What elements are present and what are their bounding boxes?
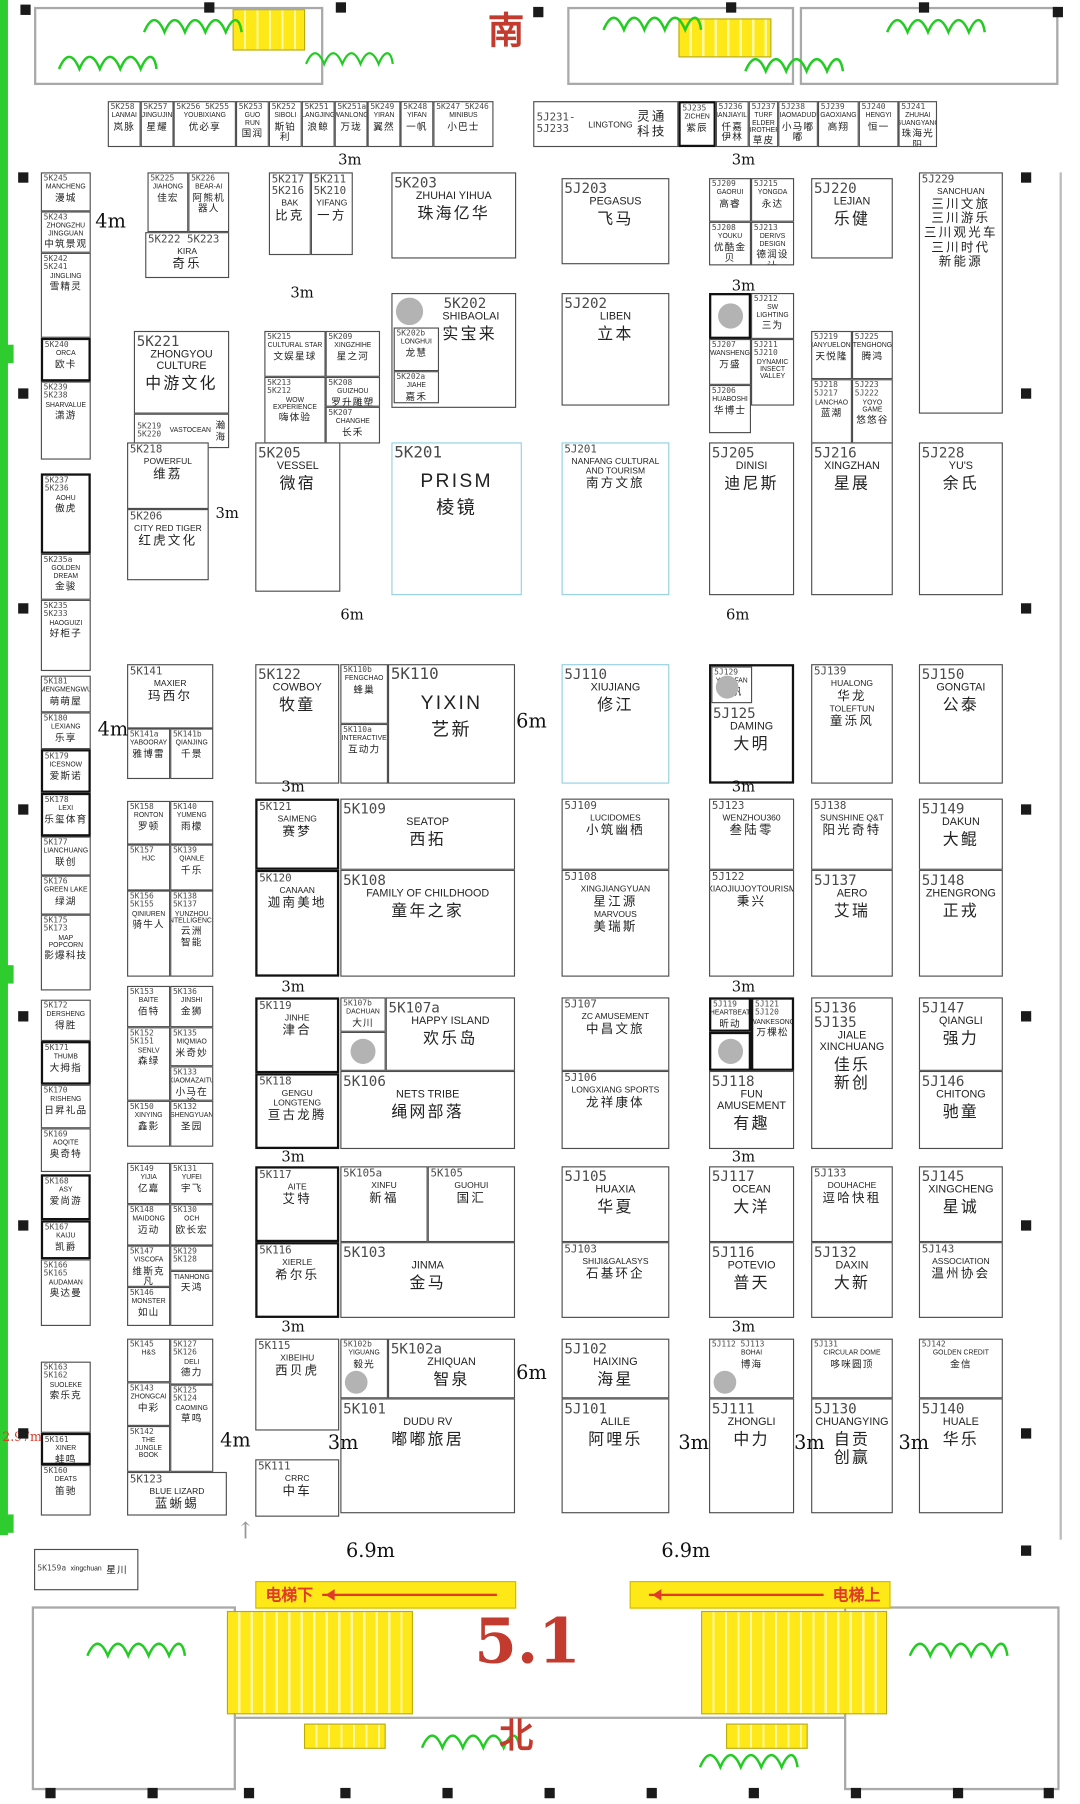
booth-5K139: 5K139QIANLE千乐: [170, 845, 213, 891]
booth-name-zh: 阿熊机器人: [191, 193, 227, 215]
booth-circle-marker: [396, 298, 423, 326]
booth-code: 5J136 5J135: [813, 1000, 891, 1030]
dimension-label: 3m: [732, 1149, 755, 1166]
booth-name-en: YOYO GAME: [854, 400, 890, 414]
booth-code: 5K132: [172, 1103, 212, 1111]
booth-5K127: 5K127 5K126DELI德力: [170, 1339, 213, 1385]
booth-name-en: TURF ELDER BROTHER: [749, 113, 778, 135]
booth-5J212: 5J212SW LIGHTING三为: [751, 293, 794, 339]
booth-name-en: GOLDEN CREDIT: [933, 1351, 989, 1358]
booth-name-en: PRISM: [420, 471, 492, 492]
booth-name-en: XIUJIANG: [591, 683, 641, 694]
booth-name-zh: 迈动: [138, 1224, 160, 1235]
booth-code: 5K177: [43, 839, 90, 847]
column-marker: [18, 1011, 28, 1021]
booth-name-en: COWBOY: [273, 683, 322, 694]
booth-code: 5K207: [327, 409, 378, 417]
booth-5K130: 5K130OCH欧长宏: [170, 1204, 213, 1245]
booth-code: 5J110: [563, 666, 667, 681]
booth-name-en: YUMENG: [177, 813, 207, 820]
booth-5K145: 5K145H&S: [127, 1339, 170, 1383]
booth-name-en: JINMA: [412, 1261, 444, 1272]
dimension-label: 4m: [98, 718, 129, 741]
booth-name-en: LIBEN: [600, 312, 631, 323]
booth-circle-marker: [718, 303, 743, 328]
booth-name-en: QIANJIAYILIN: [716, 113, 749, 120]
booth-code: 5K127 5K126: [172, 1341, 212, 1358]
booth-name-en: BAK: [281, 199, 298, 208]
booth-code: 5J121 5J120: [754, 1001, 791, 1018]
dimension-label: 3m: [678, 1432, 709, 1455]
booth-name-zh: 美瑞斯: [593, 921, 637, 936]
booth-name-en: CHUANGYING: [815, 1417, 888, 1428]
booth-name-zh: 鑫影: [138, 1121, 160, 1132]
booth-code: 5K219 5K220: [136, 422, 165, 439]
booth-name-zh: 玛西尔: [148, 689, 192, 704]
booth-5K206: 5K206CITY RED TIGER红虎文化: [127, 509, 209, 580]
dimension-label: 6m: [516, 710, 547, 733]
booth-code: 5K105: [429, 1169, 513, 1180]
booth-code: 5J117: [711, 1169, 793, 1184]
booth-name-zh: 小马在途: [172, 1087, 211, 1101]
column-marker: [340, 1788, 350, 1798]
booth-code: 5K247 5K246: [435, 103, 492, 111]
booth-name-en: JINHE: [285, 1013, 310, 1022]
booth-code: 5K171: [44, 1044, 88, 1052]
booth-name-en: HAOGUIZI: [49, 620, 82, 627]
booth-code: 5K141a: [129, 731, 169, 739]
column-marker: [147, 1788, 157, 1798]
booth-name-en: YUNZHOU INTELLIGENCE: [170, 911, 213, 925]
booth-name-zh: 迪尼斯: [724, 474, 778, 492]
column-marker: [18, 388, 28, 398]
booth-name-en: THE JUNGLE BOOK: [129, 1438, 168, 1460]
booth-name-zh: 千乐: [181, 865, 203, 876]
booth-name-en: NANFANG CULTURAL AND TO­URISM: [564, 457, 667, 475]
booth-name-en: YIJIA: [140, 1175, 156, 1182]
plant-decoration: [590, 11, 715, 41]
booth-5J105: 5J105HUAXIA华夏: [562, 1166, 670, 1242]
booth-5K258: 5K258LANMAI岚脉: [108, 101, 141, 147]
booth-code: 5K101: [342, 1401, 513, 1416]
booth-name-zh: 中游文化: [145, 374, 218, 392]
booth-code: 5K150: [129, 1103, 169, 1111]
booth-name-zh: 蓝蜥蜴: [155, 1497, 199, 1512]
booth-5K146: 5K146MONSTER如山: [127, 1287, 170, 1326]
booth-5K179: 5K179ICESNOW爱斯诺: [41, 749, 91, 793]
booth-5K141a: 5K141aYABOORAY雅博雷: [127, 728, 170, 779]
booth-name-en: BAITE: [139, 998, 159, 1005]
booth-code: 5J118: [711, 1073, 793, 1088]
booth-name-en: INTERACTIVE: [342, 736, 387, 743]
booth-name-zh: 笛驰: [55, 1485, 77, 1496]
booth-5K103: 5K103JINMA金马: [340, 1242, 515, 1318]
booth-name-en: SHIJI&GALASYS: [582, 1257, 648, 1266]
booth-name-en: CHANGHE: [336, 419, 370, 426]
booth-5J211: 5J211 5J210DYNAMIC INSECT VALLEY: [751, 339, 794, 406]
booth-name-zh: 腾鸿: [862, 351, 884, 362]
booth-5J207: 5J207WANSHENG万盛: [709, 339, 751, 385]
dimension-label: 3m: [794, 1432, 825, 1455]
booth-code: 5J139: [813, 666, 891, 677]
booth-code: 5K237 5K236: [44, 477, 88, 494]
booth-5K217: 5K217 5K216BAK比克: [269, 172, 311, 255]
booth-code: 5K149: [129, 1165, 169, 1173]
booth-5J140: 5J140HUALE华乐: [919, 1398, 1003, 1513]
booth-name-zh: 绿湖: [55, 896, 77, 907]
booth-circle-marker: [716, 676, 739, 699]
booth-code: 5K215: [266, 333, 324, 341]
booth-name-zh: 佳宏: [157, 193, 179, 204]
booth-name-zh: 星川: [106, 1565, 128, 1576]
booth-code: 5J123: [711, 801, 793, 812]
booth-5J208: 5J208YOUKU优酷金贝: [709, 222, 751, 266]
dimension-label: 3m: [281, 1319, 304, 1336]
booth-code: 5K141: [129, 666, 212, 677]
booth-name-en: HAPPY ISLAND: [411, 1016, 489, 1027]
booth-code: 5K102b: [342, 1341, 386, 1349]
booth-code: 5J241: [900, 103, 935, 111]
booth-name-en: ASY: [59, 1187, 73, 1194]
booth-code: 5J142: [921, 1341, 1002, 1349]
booth-area: TIANHONG天鸿: [170, 1271, 213, 1326]
booth-5J101: 5J101ALILE阿哩乐: [562, 1398, 670, 1513]
booth-code: 5K252: [271, 103, 300, 111]
column-marker: [18, 1220, 28, 1230]
column-marker: [545, 1788, 555, 1798]
dimension-label: 3m: [216, 506, 239, 523]
booth-code: 5J148: [921, 872, 1002, 887]
booth-name-en: CHITONG: [936, 1089, 986, 1100]
booth-5J148: 5J148ZHENGRONG正戎: [919, 870, 1003, 977]
booth-name-zh: 龙慧: [406, 348, 428, 359]
booth-name-en: AOHU: [56, 495, 76, 502]
booth-name-en: KIRA: [177, 247, 197, 256]
booth-5J237: 5J237TURF ELDER BROTHER草皮哥: [749, 101, 778, 147]
bottom-stair-right: [701, 1611, 887, 1714]
booth-name-en: LONGXIANG SPORTS: [572, 1086, 660, 1095]
booth-5K101: 5K101DUDU RV嘟嘟旅居: [340, 1398, 515, 1513]
booth-name-zh: 蛙鸣: [55, 1454, 77, 1465]
booth-code: 5K202: [442, 295, 515, 310]
booth-name-zh: 国汇: [457, 1191, 486, 1206]
booth-name-en: QINIUREN: [132, 911, 165, 918]
dimension-label: 3m: [732, 1319, 755, 1336]
dimension-label: 6.9m: [346, 1540, 395, 1563]
dimension-label: 6m: [516, 1362, 547, 1385]
booth-circle-marker: [345, 1371, 368, 1394]
booth-code: 5K161: [44, 1436, 88, 1444]
booth-name-en: JINSHI: [181, 998, 203, 1005]
booth-name-en: BOHAI: [741, 1351, 762, 1358]
booth-5K105: 5K105GUOHUI国汇: [428, 1166, 515, 1242]
booth-code: 5J215: [753, 180, 793, 188]
booth-name-zh: 牧童: [279, 695, 315, 713]
booth-code: 5J111: [711, 1401, 793, 1416]
booth-name-zh: 乐玺体育: [44, 814, 87, 825]
booth-code: 5J103: [563, 1244, 667, 1255]
booth-code: 5J220: [813, 180, 891, 195]
booth-name-en: GAOXIANG: [820, 113, 856, 120]
booth-name-zh: 珠海亿华: [417, 203, 490, 221]
booth-name-zh: 草皮哥: [751, 136, 776, 147]
booth-name-zh: 悠悠谷: [856, 415, 888, 426]
booth-code: 5K145: [129, 1341, 169, 1349]
booth-name-en: HUAXIA: [595, 1185, 635, 1196]
booth-code: 5K251: [303, 103, 332, 111]
booth-5K157: 5K157HJC: [127, 845, 170, 891]
booth-name-en: TENGHONG: [853, 343, 892, 350]
elevator-down-bar: 电梯下: [255, 1581, 516, 1609]
booth-code: 5J206: [711, 387, 750, 395]
booth-5K245: 5K245MANCHENG漫城: [41, 172, 91, 211]
plant-decoration: [68, 1637, 204, 1667]
booth-name-en: GENGU LONGTENG: [259, 1089, 336, 1107]
booth-name-zh: 奥奇特: [50, 1149, 82, 1160]
booth-code: 5J125: [712, 706, 791, 721]
booth-name-zh: 中彩: [138, 1403, 160, 1414]
booth-name-en: DUDU RV: [403, 1417, 452, 1428]
booth-code: 5J133: [813, 1169, 891, 1180]
booth-code: 5K147: [129, 1248, 169, 1256]
booth-code: 5K125 5K124: [172, 1387, 212, 1404]
booth-name-en: ZHONGLI: [728, 1417, 776, 1428]
booth-5K256: 5K256 5K255YOUBIXIANG优必享: [174, 101, 236, 147]
booth-5J240: 5J240HENGYI恒一: [859, 101, 899, 147]
booth-name-zh: 国润: [242, 129, 264, 140]
booth-5K215: 5K215CULTURAL STAR文娱星球: [264, 331, 325, 377]
booth-code: 5K221: [136, 333, 228, 348]
booth-code: 5K248: [402, 103, 431, 111]
booth-name-zh: 绳网部落: [391, 1102, 464, 1120]
booth-code: 5K110: [390, 666, 514, 683]
booth-name-zh: 大洋: [733, 1197, 769, 1215]
booth-5J139: 5J139HUALONG华龙TOLEFTUN童泺风: [811, 664, 893, 784]
booth-5K251a: 5K251aWANLONG万珑: [335, 101, 368, 147]
booth-name-zh: 华夏: [597, 1197, 633, 1215]
booth-name-zh: 龙祥康体: [586, 1096, 645, 1111]
booth-name-en: GONGTAI: [936, 683, 985, 694]
booth-name-en: POWERFUL: [144, 457, 192, 466]
booth-5J143: 5J143ASSOCIATION温州协会: [919, 1242, 1003, 1318]
booth-name-en: YIXIN: [421, 693, 483, 714]
booth-name-zh: 小筑幽栖: [586, 824, 645, 839]
booth-name-en: LUCIDOMES: [590, 813, 641, 822]
booth-5K102b: 5K102bYIGUANG毅光: [340, 1339, 388, 1399]
booth-name-en: GREEN LAKE: [44, 887, 88, 894]
booth-name-en: DEATS: [55, 1477, 77, 1484]
booth-name-en: TOLEFTUN: [830, 705, 875, 714]
booth-name-en: DERSHENG: [46, 1012, 85, 1019]
booth-name-en: YU'S: [949, 461, 973, 472]
booth-name-en: JIAHONG: [153, 184, 183, 191]
booth-5K110: 5K110YIXIN艺新: [388, 664, 515, 784]
booth-code: 5K243: [43, 214, 90, 222]
booth-name-en: YIFANG: [316, 199, 347, 208]
booth-code: 5K240: [44, 341, 88, 349]
booth-name-zh: 金马: [410, 1273, 446, 1291]
booth-circle-marker: [351, 1039, 376, 1064]
booth-5J202: 5J202LIBEN立本: [562, 293, 670, 406]
booth-name-en: HUALE: [943, 1417, 979, 1428]
booth-name-zh: 金信: [950, 1359, 972, 1370]
booth-code: 5K179: [44, 753, 88, 761]
booth-code: 5J108: [563, 872, 667, 883]
booth-5J225: 5J225TENGHONG腾鸿: [852, 331, 893, 379]
booth-code: 5J211 5J210: [753, 341, 793, 358]
booth-5K111: 5K111CRRC中车: [255, 1459, 339, 1516]
booth-5K136: 5K136JINSHI金狮: [170, 986, 213, 1027]
booth-5K158: 5K158RONTON罗顿: [127, 801, 170, 845]
dimension-label: 6m: [340, 607, 363, 624]
booth-code: 5K256 5K255: [175, 103, 234, 111]
booth-code: 5J216: [813, 445, 891, 460]
booth-5K248: 5K248YIFAN一帆: [400, 101, 433, 147]
booth-name-zh: 微宿: [280, 474, 316, 492]
booth-name-zh: 逗哈快租: [822, 1191, 881, 1206]
booth-5J130: 5J130CHUANGYING自贡 创赢: [811, 1398, 893, 1513]
booth-code: 5J119: [712, 1001, 748, 1009]
booth-name-zh: 紫辰: [686, 123, 708, 134]
booth-name-zh: 哆咪圆顶: [830, 1359, 873, 1370]
booth-5K226: 5K226BEAR-AI阿熊机器人: [188, 172, 229, 232]
booth-5K143: 5K143ZHONGCAI中彩: [127, 1382, 170, 1426]
booth-name-en: ASSOCIATION: [932, 1257, 990, 1266]
booth-name-zh: 蓝潮: [821, 408, 843, 419]
booth-name-zh: 高翔: [828, 121, 850, 132]
booth-5K132: 5K132SHENGYUAN圣园: [170, 1101, 213, 1147]
booth-5J215: 5J215YONGDA永达: [751, 178, 794, 222]
booth-name-en: GUO RUN: [238, 113, 266, 127]
booth-5K180: 5K180LEXIANG乐享: [41, 712, 91, 749]
booth-name-en: ALILE: [601, 1417, 630, 1428]
booth-name-en: ZICHEN: [684, 114, 709, 121]
booth-code: 5K208: [327, 379, 378, 387]
booth-code: 5K142: [129, 1428, 169, 1436]
booth-code: 5K106: [342, 1073, 513, 1088]
column-marker: [1021, 1545, 1031, 1555]
booth-name-zh: 恒一: [868, 121, 890, 132]
left-wall-strip: [0, 0, 8, 1535]
booth-name-zh: 如山: [138, 1307, 160, 1318]
column-marker: [647, 1788, 657, 1798]
booth-code: 5K226: [190, 175, 227, 183]
booth-name-zh: 童年之家: [391, 901, 464, 919]
booth-name-en: FUN AMUSEMENT: [711, 1089, 792, 1112]
booth-name-zh: 佰特: [138, 1006, 160, 1017]
booth-code: 5K235 5K233: [43, 602, 90, 619]
booth-name-en: RONTON: [134, 813, 163, 820]
booth-code: 5J240: [860, 103, 896, 111]
booth-name-zh: 千景: [181, 749, 203, 760]
booth-5K168: 5K168ASY爱尚游: [41, 1174, 91, 1220]
plant-decoration: [885, 1637, 1032, 1667]
booth-name-en: SUOLEKE: [50, 1382, 82, 1389]
booth-code: 5J237: [750, 103, 776, 111]
booth-name-zh: 津合: [282, 1024, 311, 1039]
booth-code: 5J228: [921, 445, 1002, 460]
booth-name-en: ZHUHAI YIHUA: [416, 191, 492, 202]
booth-code: 5K172: [43, 1002, 90, 1010]
booth-name-zh: 岚脉: [113, 121, 135, 132]
booth-name-zh: 亿嘉: [138, 1183, 160, 1194]
dimension-label: 4m: [95, 210, 126, 233]
booth-name-zh: 阳光奇特: [822, 824, 881, 839]
booth-5J201: 5J201NANFANG CULTURAL AND TO­URISM南方文旅: [562, 442, 670, 595]
booth-5J131: 5J131CIRCULAR DOME哆咪圆顶: [811, 1339, 893, 1399]
booth-5K119: 5K119JINHE津合: [255, 997, 339, 1073]
booth-name-zh: 森绿: [138, 1056, 160, 1067]
booth-name-zh: 仟嘉伊林: [718, 121, 746, 143]
booth-name-en: TIANYUELONG: [811, 343, 852, 350]
booth-5K222: 5K222 5K223KIRA奇乐: [145, 232, 229, 278]
booth-name-en: YIGUANG: [348, 1351, 379, 1358]
booth-5K131: 5K131YUFEI宇飞: [170, 1163, 213, 1204]
column-marker: [533, 7, 543, 17]
booth-name-en: DAMING: [730, 722, 773, 733]
booth-code: 5K156 5K155: [129, 893, 169, 910]
booth-code: 5J146: [921, 1073, 1002, 1088]
booth-code: 5K109: [342, 801, 513, 816]
booth-5K209: 5K209XINGZHIHE星之河: [326, 331, 380, 377]
booth-5K221: 5K221ZHONGYOU CULTURE中游文化: [134, 331, 229, 414]
booth-name-zh: 秉兴: [737, 895, 766, 910]
booth-name-zh: 乐享: [55, 733, 77, 744]
booth-5K122: 5K122COWBOY牧童: [255, 664, 339, 784]
booth-code: 5K138 5K137: [172, 893, 212, 910]
dimension-label: 3m: [732, 979, 755, 996]
booth-code: 5J219: [813, 333, 850, 341]
booth-name-zh: 西拓: [410, 830, 446, 848]
column-marker: [1021, 804, 1031, 814]
right-wall-line: [1060, 172, 1062, 1539]
booth-name-en: WENZHOU360: [722, 813, 780, 822]
booth-name-en: GUIZHOU: [337, 389, 368, 396]
booth-code: 5K168: [44, 1178, 88, 1186]
booth-code: 5K140: [172, 803, 212, 811]
booth-name-en: MONSTER: [132, 1299, 166, 1306]
booth-name-en: YIRAN: [374, 113, 395, 120]
dimension-label: 6m: [726, 607, 749, 624]
booth-name-en: ZHONGZHU JINGGUAN: [43, 223, 88, 237]
booth-name-zh: 星耀: [146, 121, 168, 132]
booth-code: 5K107a: [387, 1000, 513, 1015]
booth-name-en: BEAR-AI: [195, 184, 222, 191]
booth-name-zh: 索乐克: [50, 1390, 82, 1401]
booth-name-zh: 星江源: [593, 895, 637, 910]
booth-code: 5K170: [43, 1087, 90, 1095]
booth-5J117: 5J117OCEAN大洋: [709, 1166, 794, 1242]
booth-name-en: ZHONGCAI: [131, 1394, 167, 1401]
booth-name-zh: 石基环企: [586, 1267, 645, 1282]
booth-code: 5K239 5K238: [43, 384, 90, 401]
booth-name-en: DAKUN: [942, 817, 980, 828]
booth-5J111: 5J111ZHONGLI中力: [709, 1398, 794, 1513]
booth-name-en: MANCHENG: [46, 184, 86, 191]
booth-name-en: AITE: [288, 1182, 307, 1191]
booth-name-zh: 凯爵: [55, 1242, 77, 1253]
booth-name-en: QIANJING: [176, 740, 208, 747]
booth-name-zh: 正戎: [943, 901, 979, 919]
column-marker: [1021, 1220, 1031, 1230]
booth-code: 5K110b: [342, 666, 386, 674]
booth-name-zh: 互动力: [348, 744, 380, 755]
booth-name-zh: 珠海光阳: [901, 129, 935, 147]
booth-5J109: 5J109LUCIDOMES小筑幽栖: [562, 799, 670, 870]
booth-name-zh: 艾瑞: [834, 901, 870, 919]
column-marker: [18, 172, 28, 182]
booth-5J136: 5J136 5J135JIALE XINCHUANG佳乐 新创: [811, 997, 893, 1149]
